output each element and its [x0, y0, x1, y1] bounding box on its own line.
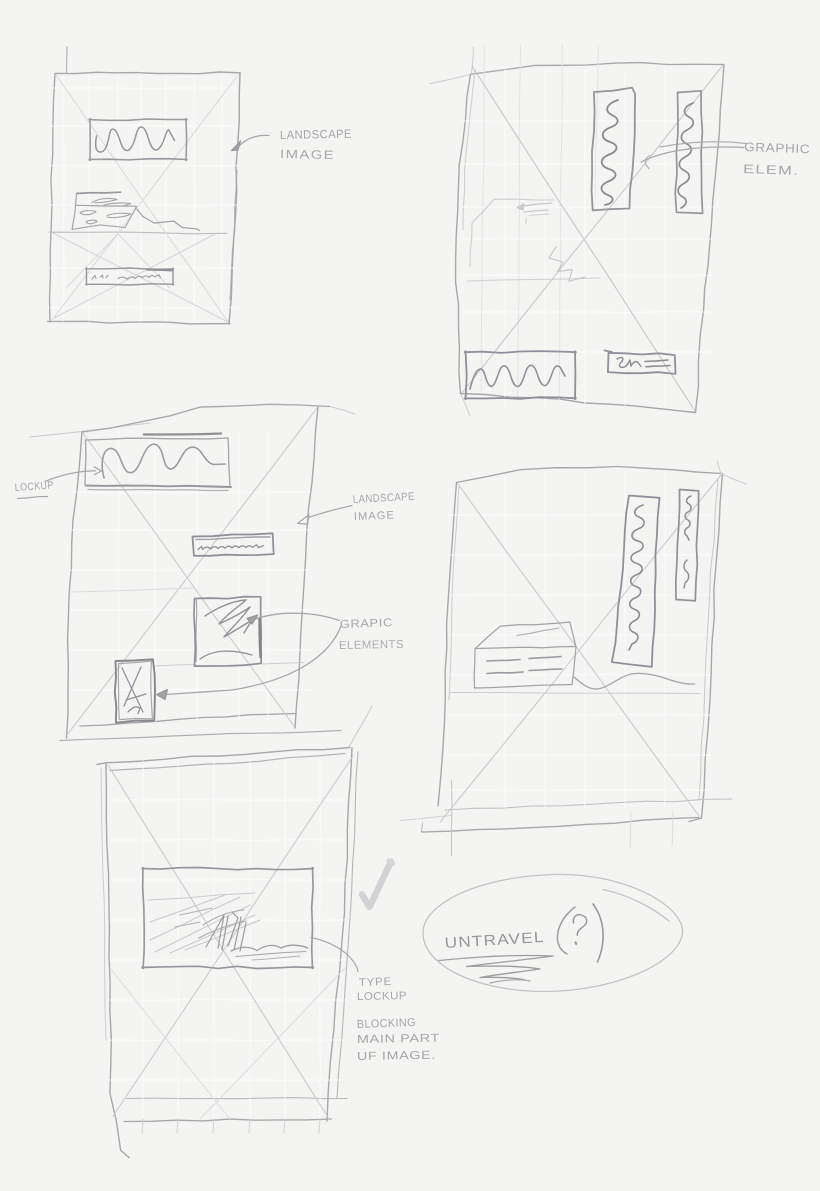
svg-text:ELEM.: ELEM. — [743, 162, 799, 178]
svg-text:LANDSCAPE: LANDSCAPE — [280, 127, 352, 142]
svg-text:TYPE: TYPE — [359, 976, 392, 989]
svg-text:IMAGE: IMAGE — [354, 510, 395, 523]
svg-text:GRAPIC: GRAPIC — [340, 617, 393, 631]
svg-text:IMAGE: IMAGE — [280, 147, 335, 162]
svg-text:BLOCKING: BLOCKING — [357, 1017, 416, 1031]
svg-text:LOCKUP: LOCKUP — [357, 990, 407, 1003]
svg-text:ELEMENTS: ELEMENTS — [339, 639, 404, 652]
svg-text:GRAPHIC: GRAPHIC — [744, 140, 810, 156]
svg-text:UF IMAGE.: UF IMAGE. — [357, 1050, 436, 1063]
svg-text:MAIN PART: MAIN PART — [357, 1033, 440, 1046]
